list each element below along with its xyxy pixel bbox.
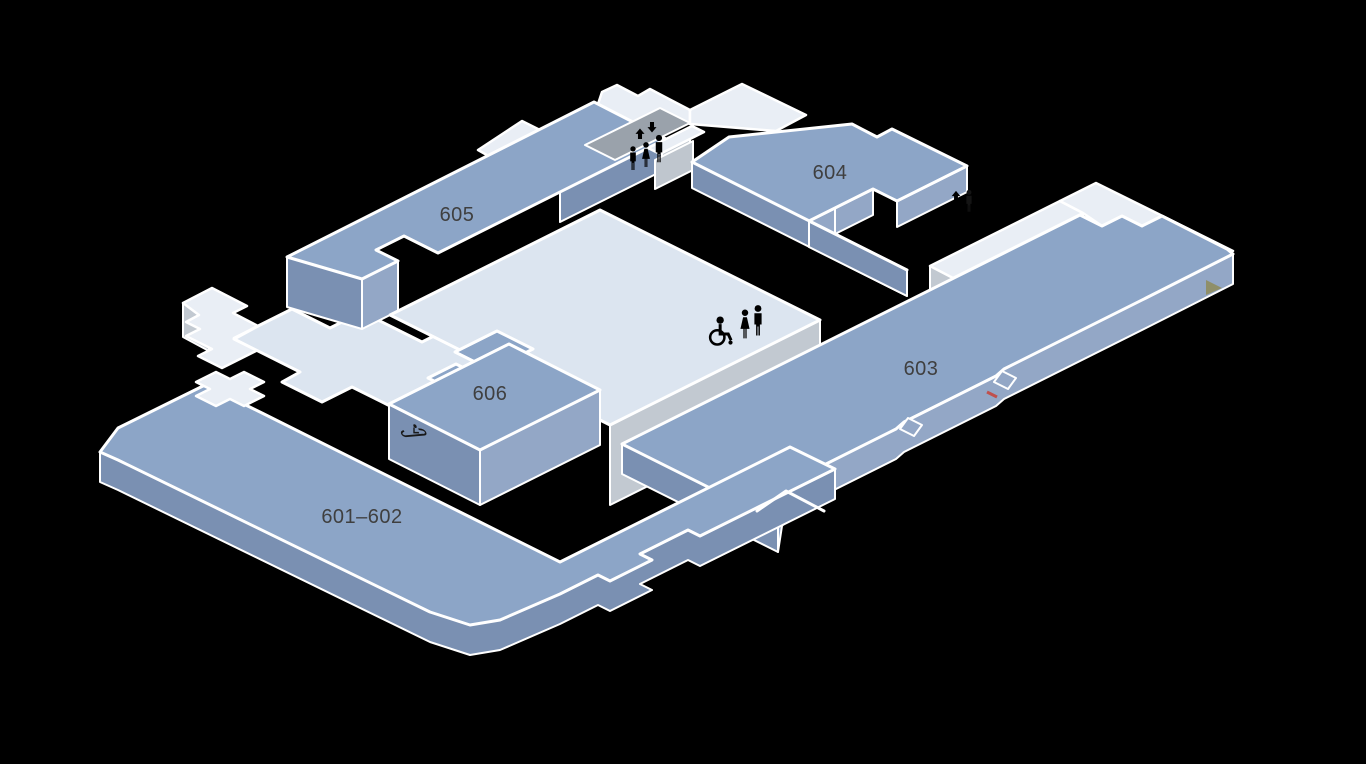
concourse-wall-right-of-corridor xyxy=(690,84,806,131)
room-604-notch-face-c xyxy=(809,221,907,296)
room-label-603: 603 xyxy=(904,358,939,380)
room-label-604: 604 xyxy=(813,162,848,184)
room-label-605: 605 xyxy=(440,204,475,226)
floor-map-stage: 601–602 603 604 605 606 xyxy=(0,0,1366,764)
room-label-606: 606 xyxy=(473,383,508,405)
person-icon-partial xyxy=(966,190,971,212)
room-label-601-602: 601–602 xyxy=(321,506,402,528)
floor-map-canvas: 601–602 603 604 605 606 xyxy=(0,0,1366,764)
room-604 xyxy=(692,124,967,296)
